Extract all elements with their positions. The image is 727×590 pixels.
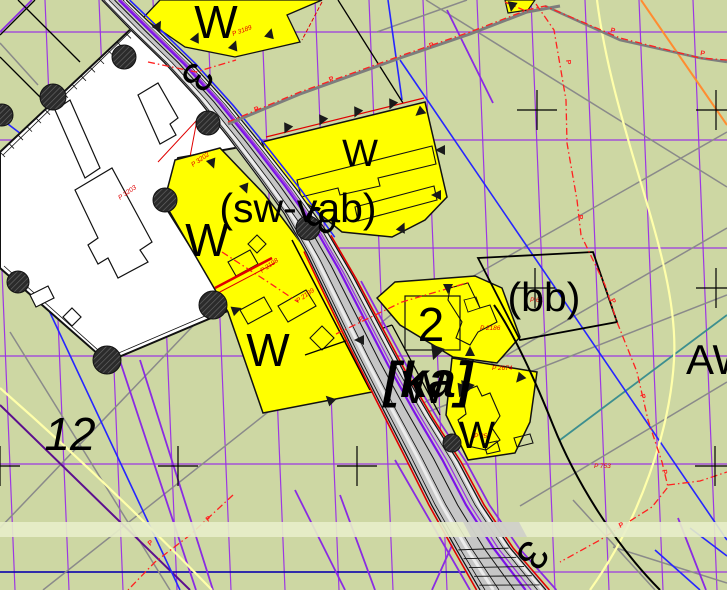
tree-symbol [196, 111, 220, 135]
survey-point-label: P 753 [594, 463, 611, 470]
tree-symbol [7, 271, 29, 293]
parcel-number-2: 2 [418, 299, 445, 352]
planning-label-sw-vab: (sw-vab) [219, 185, 376, 231]
parcel-number-12: 12 [44, 408, 95, 460]
tree-symbol [40, 84, 66, 110]
zone-label-w: W [342, 133, 378, 175]
survey-point-label: P 2674 [492, 365, 513, 372]
zone-label-w: W [194, 0, 238, 48]
planning-label-ka: [ka] [382, 352, 475, 408]
zone-label-w: W [459, 415, 495, 457]
survey-point-label: P 2186 [480, 325, 501, 332]
planning-label-bb: (bb) [508, 274, 581, 320]
zone-label-w: W [246, 324, 290, 376]
planning-label-aw: AW [686, 336, 727, 383]
zoning-map: P 3203 P 3202 P 2199 P 2198 P 2186 P 267… [0, 0, 727, 590]
tree-symbol [93, 346, 121, 374]
road-in-band [463, 522, 527, 537]
tree-symbol [112, 45, 136, 69]
tree-symbol [153, 188, 177, 212]
tree-symbol [199, 291, 227, 319]
map-canvas[interactable]: P 3203 P 3202 P 2199 P 2198 P 2186 P 267… [0, 0, 727, 590]
